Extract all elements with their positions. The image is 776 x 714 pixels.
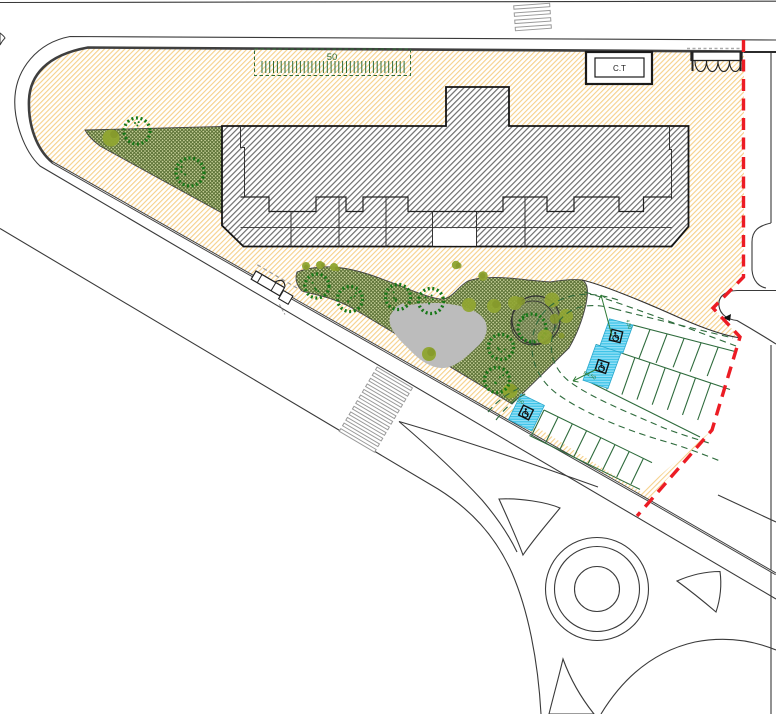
svg-text:50: 50 <box>327 52 338 63</box>
svg-text:C.T: C.T <box>613 64 626 73</box>
